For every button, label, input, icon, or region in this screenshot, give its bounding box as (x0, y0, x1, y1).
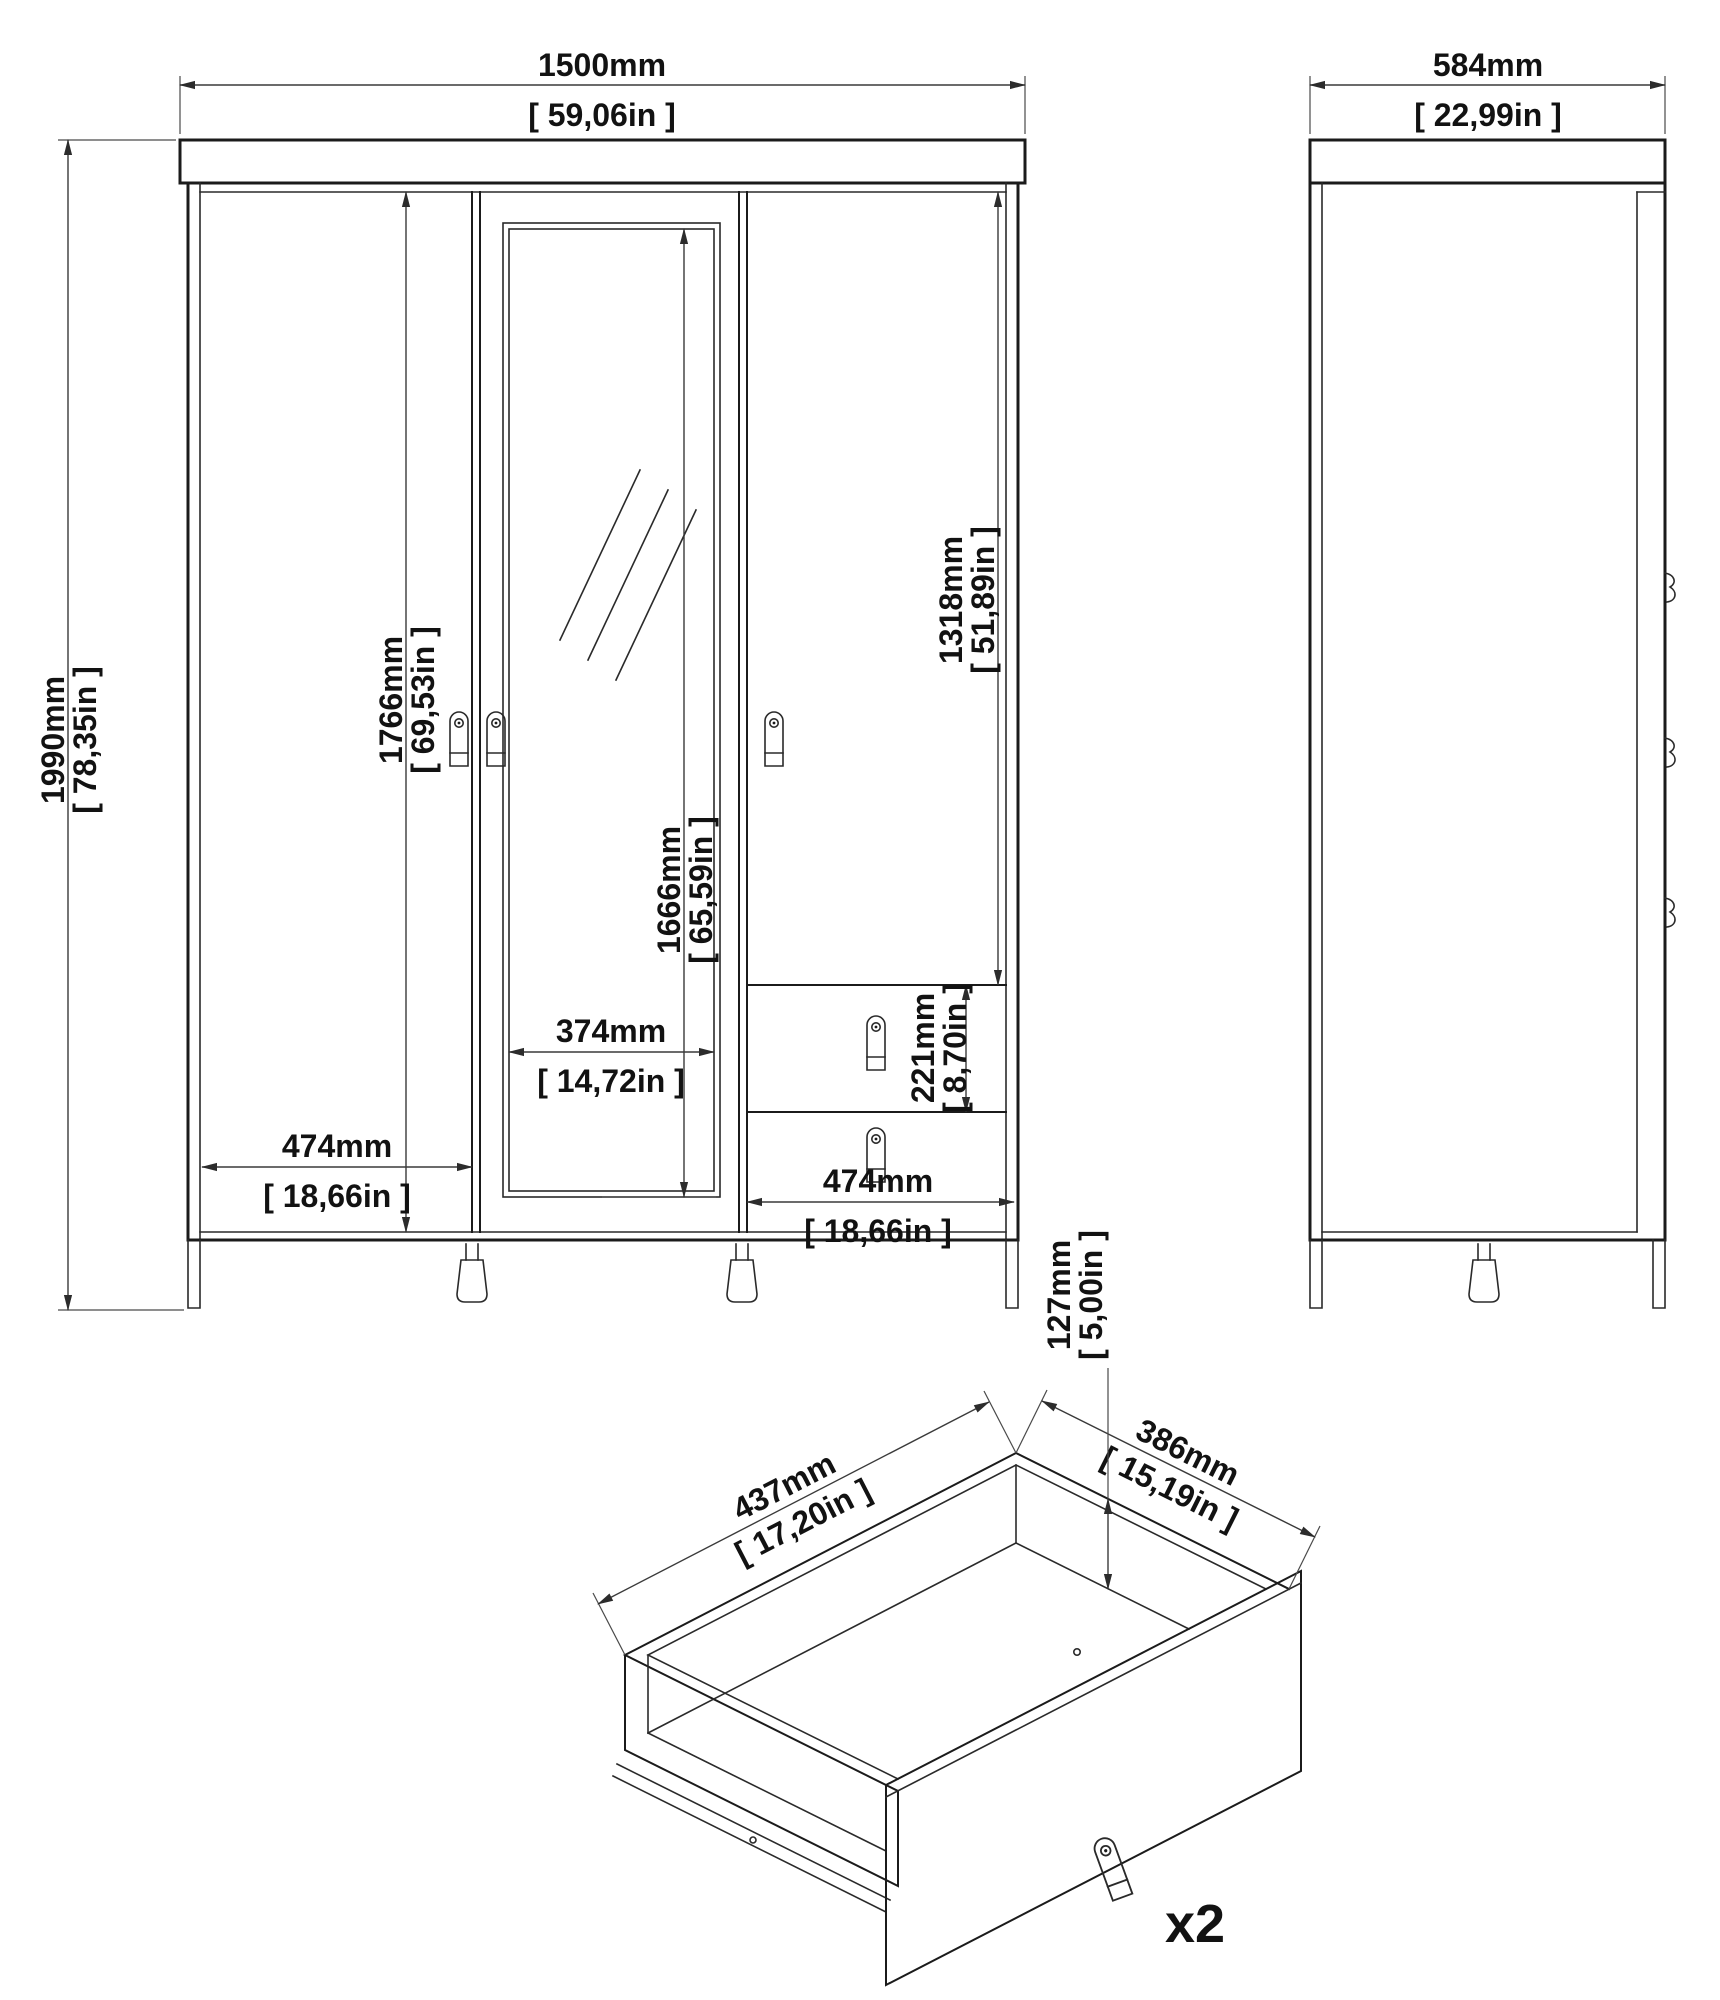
adjustable-foot (1469, 1244, 1499, 1302)
side-front-leg (1653, 1240, 1665, 1308)
dim-label: 584mm (1433, 47, 1543, 83)
front-top-board (180, 140, 1025, 183)
dim-right-section-width: 474mm [ 18,66in ] (747, 1163, 1014, 1249)
dim-label: [ 5,00in ] (1073, 1230, 1109, 1360)
dim-label: [ 14,72in ] (537, 1063, 685, 1099)
dim-label: [ 78,35in ] (67, 666, 103, 814)
handle-side-profile-icon (1665, 573, 1675, 602)
dim-side-depth: 584mm [ 22,99in ] (1310, 47, 1665, 134)
dim-door-height: 1766mm [ 69,53in ] (373, 192, 441, 1232)
left-door-handle-icon (450, 712, 468, 766)
dim-front-width: 1500mm [ 59,06in ] (180, 47, 1025, 134)
drawer-detail-view: 437mm [ 17,20in ] 386mm [ 15,19in ] 127m… (593, 1230, 1320, 1985)
wardrobe-side-view: 584mm [ 22,99in ] (1310, 47, 1675, 1308)
handle-side-profile-icon (1665, 898, 1675, 927)
screw-hole (750, 1837, 756, 1843)
dim-drawer-depth: 386mm [ 15,19in ] (1016, 1390, 1320, 1589)
dim-drawer-width: 437mm [ 17,20in ] (593, 1391, 1016, 1655)
dim-label: 221mm (905, 993, 941, 1103)
dim-front-height: 1990mm [ 78,35in ] (35, 140, 184, 1310)
right-door-handle-icon (765, 712, 783, 766)
front-left-leg (188, 1240, 200, 1308)
dim-label: [ 69,53in ] (405, 626, 441, 774)
drawer-slide-rail (613, 1776, 886, 1912)
handle-side-profile-icon (1665, 738, 1675, 767)
mirror-frame (503, 223, 720, 1197)
side-back-leg (1310, 1240, 1322, 1308)
dim-label: [ 22,99in ] (1414, 97, 1562, 133)
dim-label: 474mm (823, 1163, 933, 1199)
front-right-leg (1006, 1240, 1018, 1308)
drawer-1-handle-icon (867, 1016, 885, 1070)
right-door (739, 192, 747, 1232)
screw-hole (1074, 1649, 1080, 1655)
dim-drawer-height: 221mm [ 8,70in ] (905, 983, 973, 1113)
dim-left-door-width: 474mm [ 18,66in ] (202, 1128, 472, 1214)
dim-label: 1666mm (651, 826, 687, 954)
dim-label: 1318mm (933, 536, 969, 664)
dim-label: [ 65,59in ] (683, 816, 719, 964)
dim-label: [ 8,70in ] (937, 983, 973, 1113)
mirror-reflection-marks (560, 470, 696, 680)
technical-drawing-page: 1500mm [ 59,06in ] 1990mm [ 78,35in ] 17… (0, 0, 1720, 2000)
dim-label: [ 51,89in ] (965, 526, 1001, 674)
dim-mirror-width: 374mm [ 14,72in ] (509, 1013, 714, 1099)
dim-label: 1766mm (373, 636, 409, 764)
dim-label: [ 18,66in ] (263, 1178, 411, 1214)
dim-label: 474mm (282, 1128, 392, 1164)
dim-label: [ 18,66in ] (804, 1213, 952, 1249)
dim-label: 374mm (556, 1013, 666, 1049)
adjustable-foot (727, 1244, 757, 1302)
dim-label: 1500mm (538, 47, 666, 83)
dim-drawer-height-detail: 127mm [ 5,00in ] (1041, 1230, 1109, 1589)
dim-label: 127mm (1041, 1240, 1077, 1350)
dim-right-door-height: 1318mm [ 51,89in ] (933, 192, 1001, 985)
side-top-board (1310, 140, 1665, 183)
adjustable-foot (457, 1244, 487, 1302)
wardrobe-front-view: 1500mm [ 59,06in ] 1990mm [ 78,35in ] 17… (35, 47, 1025, 1310)
drawer-quantity-label: x2 (1165, 1894, 1225, 1954)
dim-label: [ 59,06in ] (528, 97, 676, 133)
wardrobe-dimension-diagram: 1500mm [ 59,06in ] 1990mm [ 78,35in ] 17… (0, 0, 1720, 2000)
dim-label: 1990mm (35, 676, 71, 804)
drawer-front-panel (886, 1571, 1301, 1985)
